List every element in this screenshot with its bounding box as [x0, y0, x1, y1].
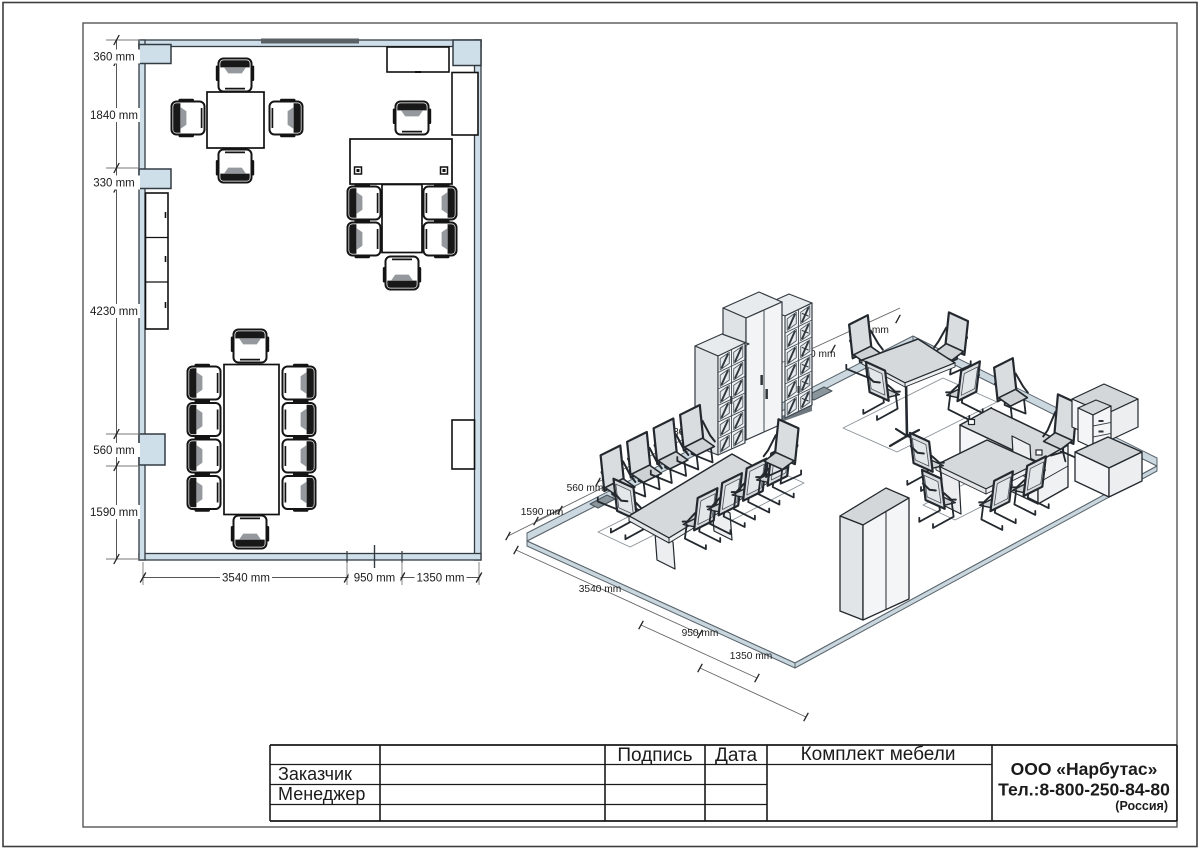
svg-text:560 mm: 560 mm	[567, 483, 604, 494]
svg-text:Дата: Дата	[715, 745, 758, 766]
svg-text:360 mm: 360 mm	[93, 52, 135, 64]
svg-text:Подпись: Подпись	[617, 745, 692, 766]
svg-text:1840 mm: 1840 mm	[90, 110, 138, 122]
svg-text:Комплект мебели: Комплект мебели	[801, 744, 956, 765]
svg-text:560 mm: 560 mm	[93, 445, 135, 457]
svg-text:Менеджер: Менеджер	[278, 784, 365, 804]
svg-text:(Россия): (Россия)	[1115, 799, 1168, 813]
svg-text:1590 mm: 1590 mm	[521, 507, 563, 518]
svg-text:950 mm: 950 mm	[682, 628, 719, 639]
svg-text:1350 mm: 1350 mm	[417, 573, 465, 585]
svg-text:Заказчик: Заказчик	[278, 764, 352, 784]
svg-text:1350 mm: 1350 mm	[730, 651, 772, 662]
svg-text:ООО «Нарбутас»: ООО «Нарбутас»	[1011, 759, 1158, 779]
svg-text:1590 mm: 1590 mm	[90, 507, 138, 519]
svg-text:3540 mm: 3540 mm	[222, 573, 270, 585]
svg-text:4230 mm: 4230 mm	[90, 306, 138, 318]
svg-text:950 mm: 950 mm	[354, 573, 396, 585]
svg-text:3540 mm: 3540 mm	[579, 584, 621, 595]
svg-text:Тел.:8-800-250-84-80: Тел.:8-800-250-84-80	[998, 780, 1170, 800]
svg-text:330 mm: 330 mm	[93, 178, 135, 190]
